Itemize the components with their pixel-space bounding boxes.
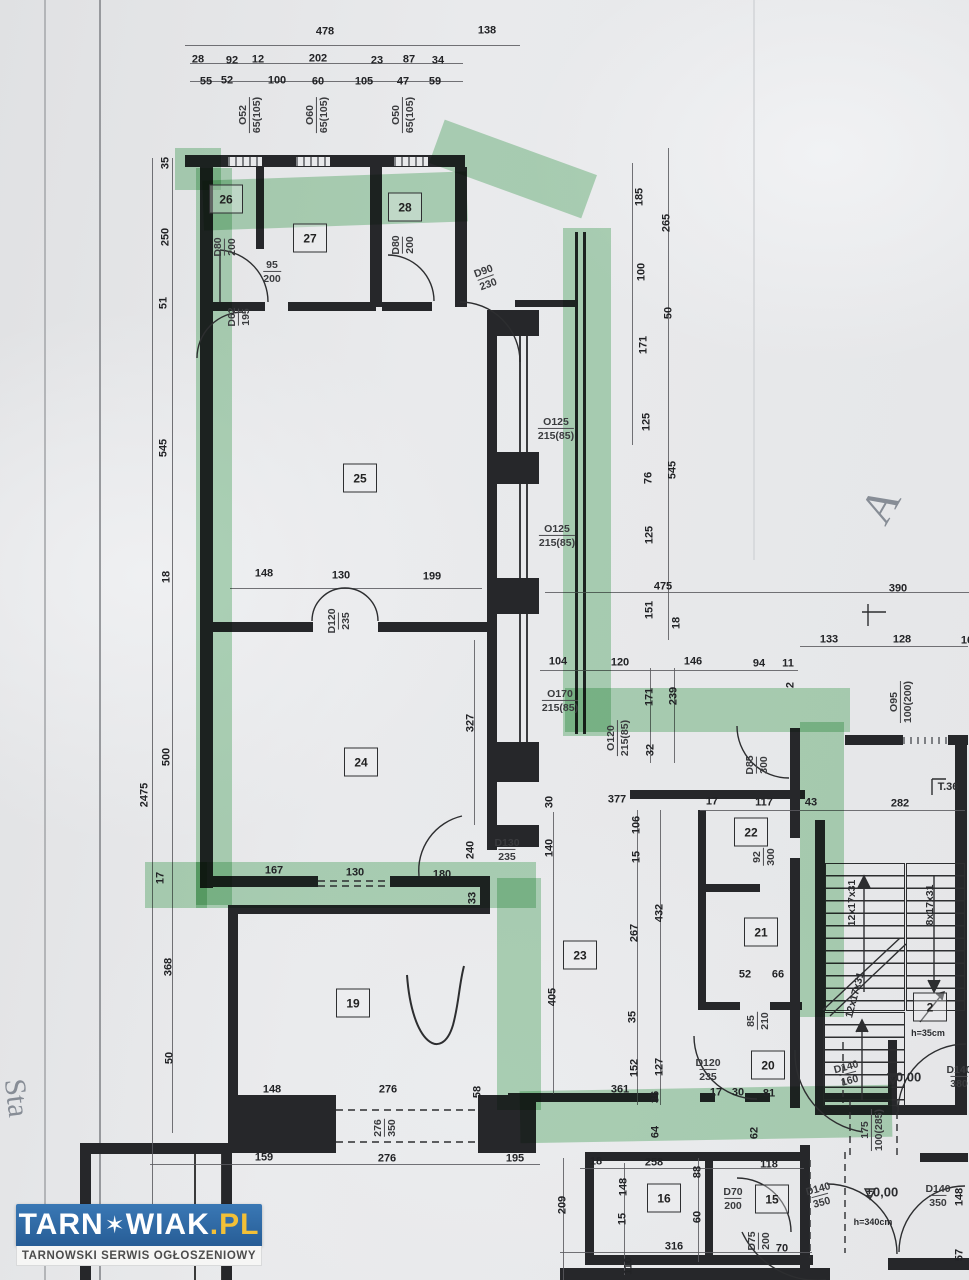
highlighter-mark <box>196 862 536 908</box>
opening-code: D75 <box>746 1231 758 1250</box>
opening-code: O50 <box>390 105 402 125</box>
dimension-label: 106 <box>632 816 643 834</box>
opening-size: 235 <box>699 1069 717 1083</box>
dimension-label: 81 <box>763 1089 775 1100</box>
dimension-label: 148 <box>955 1188 966 1206</box>
window-opening <box>903 737 948 744</box>
dimension-label: 478 <box>316 27 334 38</box>
room-number: 15 <box>755 1185 789 1214</box>
door-label: D140380 <box>946 1064 969 1090</box>
opening-code: D80 <box>390 235 402 254</box>
dimension-label: 545 <box>668 461 679 479</box>
wall <box>790 858 800 1108</box>
dimension-label: 180 <box>433 870 451 881</box>
dimension-label: 432 <box>655 904 666 922</box>
wall <box>80 1143 232 1154</box>
level-mark: ±0,00 <box>889 1070 921 1085</box>
dimension-line <box>474 640 475 825</box>
star-icon: ✶ <box>105 1211 125 1240</box>
opening-label: 175100(285) <box>859 1109 885 1151</box>
opening-code: O52 <box>237 105 249 125</box>
stair-run-label: 8x17x31 <box>924 885 936 926</box>
door-label: D140350 <box>925 1183 950 1209</box>
dimension-label: 117 <box>755 798 773 809</box>
dimension-label: 30 <box>545 796 556 808</box>
opening-size: 350 <box>384 1119 398 1137</box>
dimension-label: 28 <box>192 55 204 66</box>
opening-size: 300 <box>756 756 770 774</box>
opening-code: O95 <box>888 692 900 712</box>
wall <box>487 310 539 336</box>
dimension-label: 30 <box>732 1088 744 1099</box>
wall <box>560 1268 830 1280</box>
opening-size: 100(285) <box>871 1109 885 1151</box>
brand-text: WIAK <box>126 1208 210 1242</box>
reference-label: T.36 <box>938 781 959 793</box>
wall <box>228 1095 336 1153</box>
stair-note: h=340cm <box>854 1217 893 1227</box>
window-glazing-line <box>526 336 528 452</box>
dimension-label: 92 <box>226 56 238 67</box>
wall <box>705 1160 713 1260</box>
window-label: O5065(105) <box>390 97 416 133</box>
brand-domain-text: .PL <box>210 1208 260 1242</box>
dimension-label: 148 <box>255 569 273 580</box>
dimension-label: 239 <box>669 687 680 705</box>
opening-size: 350 <box>811 1193 832 1211</box>
opening-size: 100(200) <box>900 681 914 723</box>
dimension-label: 390 <box>889 584 907 595</box>
wall <box>487 578 539 614</box>
room-number: 26 <box>209 185 243 214</box>
dimension-label: 118 <box>760 1160 778 1171</box>
wall <box>790 728 800 838</box>
dimension-label: 127 <box>655 1058 666 1076</box>
wall <box>585 1255 813 1265</box>
dimension-label: 12 <box>252 55 264 66</box>
window-glazing-line <box>526 614 528 742</box>
dimension-label: 250 <box>161 228 172 246</box>
room-number: 16 <box>647 1184 681 1213</box>
wall <box>770 1002 802 1010</box>
opening-code: 85 <box>745 1015 757 1027</box>
dimension-label: 58 <box>473 1086 484 1098</box>
opening-code: D85 <box>744 755 756 774</box>
opening-code: D62 <box>226 307 238 326</box>
opening-size: 350 <box>929 1195 947 1209</box>
dimension-label: 130 <box>346 868 364 879</box>
dimension-label: 125 <box>645 526 656 544</box>
dimension-label: 32 <box>646 744 657 756</box>
door-label: D90230 <box>472 262 499 293</box>
dimension-line <box>185 45 520 46</box>
wall <box>920 1153 968 1162</box>
dimension-label: 51 <box>159 297 170 309</box>
opening-code: 95 <box>266 259 278 271</box>
wall <box>487 742 539 782</box>
opening-size: 210 <box>757 1012 771 1030</box>
opening-code: D80 <box>212 237 224 256</box>
wall <box>698 810 706 1005</box>
dimension-label: 50 <box>664 307 675 319</box>
window-glazing-line <box>519 336 521 452</box>
dimension-label: 368 <box>164 958 175 976</box>
door-label: D70200 <box>723 1186 742 1212</box>
dimension-label: 240 <box>466 841 477 859</box>
highlighter-mark <box>563 228 611 736</box>
brand-text: TARN <box>19 1208 104 1242</box>
dimension-label: 2 <box>786 682 797 688</box>
dimension-label: 138 <box>478 26 496 37</box>
scan-artifact-line <box>753 0 755 560</box>
room-number: 20 <box>751 1051 785 1080</box>
window-glazing-line <box>519 614 521 742</box>
room-number: 27 <box>293 224 327 253</box>
window-glazing-line <box>526 484 528 578</box>
dimension-label: 17 <box>156 872 167 884</box>
dimension-label: 2475 <box>140 783 151 807</box>
bleedthrough-text: Sta <box>0 1077 35 1119</box>
opening-code: D120 <box>695 1057 720 1069</box>
dimension-line <box>150 1164 540 1165</box>
window-label: O125215(85) <box>539 523 575 549</box>
dimension-label: 545 <box>159 439 170 457</box>
wall <box>698 884 760 892</box>
dimension-label: 55 <box>200 77 212 88</box>
door-label: D80200 <box>212 237 238 256</box>
dimension-label: 120 <box>611 658 629 669</box>
opening-code: D140 <box>946 1064 969 1076</box>
dimension-label: 148 <box>619 1178 630 1196</box>
dimension-label: 87 <box>403 55 415 66</box>
opening-code: D70 <box>723 1186 742 1198</box>
dimension-label: 47 <box>397 77 409 88</box>
dimension-label: 36 <box>651 1091 662 1103</box>
window-glazing-line <box>519 484 521 578</box>
dimension-label: 405 <box>548 988 559 1006</box>
dimension-label: 62 <box>750 1127 761 1139</box>
opening-size: 215(85) <box>539 535 575 549</box>
dimension-line <box>230 588 482 589</box>
opening-code: O125 <box>543 416 569 428</box>
window-label: O95100(200) <box>888 681 914 723</box>
dimension-label: 35 <box>161 157 172 169</box>
dimension-label: 17 <box>710 1088 722 1099</box>
dimension-label: 66 <box>772 970 784 981</box>
opening-size: 380 <box>950 1076 968 1090</box>
dimension-label: 94 <box>753 659 765 670</box>
dimension-label: 18 <box>590 1157 602 1168</box>
bleedthrough-text: A <box>849 477 912 532</box>
dimension-label: 276 <box>379 1085 397 1096</box>
opening-code: O170 <box>547 688 573 700</box>
dimension-label: 475 <box>654 582 672 593</box>
dimension-label: 43 <box>805 798 817 809</box>
window-opening <box>296 157 330 166</box>
window-label: O120215(85) <box>605 720 631 756</box>
room-number: 2 <box>913 993 947 1022</box>
dimension-label: 276 <box>378 1154 396 1165</box>
dimension-label: 33 <box>468 892 479 904</box>
tarnowiak-watermark: TARN✶WIAK.PL TARNOWSKI SERWIS OGŁOSZENIO… <box>16 1204 262 1266</box>
highlighter-mark <box>800 722 844 1017</box>
dimension-label: 125 <box>642 413 653 431</box>
scan-artifact-line <box>44 0 46 1280</box>
room-number: 24 <box>344 748 378 777</box>
opening-code: 175 <box>859 1121 871 1139</box>
opening-size: 195 <box>238 308 252 326</box>
wall <box>698 1002 740 1010</box>
wall <box>382 302 432 311</box>
opening-size: 235 <box>338 612 352 630</box>
opening-label: 92300 <box>751 848 777 866</box>
dimension-label: 110 <box>624 1257 635 1275</box>
dimension-label: 140 <box>545 839 556 857</box>
watermark-tagline: TARNOWSKI SERWIS OGŁOSZENIOWY <box>16 1246 262 1266</box>
opening-size: 215(85) <box>617 720 631 756</box>
dimension-label: 159 <box>255 1153 273 1164</box>
dimension-line <box>172 158 173 1133</box>
dimension-label: 88 <box>693 1166 704 1178</box>
dimension-label: 258 <box>645 1158 663 1169</box>
opening-label: 85210 <box>745 1012 771 1030</box>
dimension-label: 151 <box>645 601 656 619</box>
dimension-label: 148 <box>263 1085 281 1096</box>
room-number: 21 <box>744 918 778 947</box>
level-mark: ±0,00 <box>866 1185 898 1200</box>
window-label: O125215(85) <box>538 416 574 442</box>
opening-code: O120 <box>605 725 617 751</box>
dimension-label: 23 <box>371 56 383 67</box>
room-number: 25 <box>343 464 377 493</box>
wall <box>948 735 968 745</box>
opening-code: D120 <box>326 608 338 633</box>
dimension-label: 152 <box>630 1059 641 1077</box>
dimension-label: 35 <box>628 1011 639 1023</box>
dimension-label: 267 <box>630 924 641 942</box>
opening-size: 65(105) <box>402 97 416 133</box>
highlighter-mark <box>497 878 541 1110</box>
dimension-line <box>800 646 968 647</box>
dimension-label: 500 <box>162 748 173 766</box>
dimension-label: 18 <box>162 571 173 583</box>
opening-size: 200 <box>263 271 281 285</box>
dimension-label: 60 <box>693 1211 704 1223</box>
dimension-label: 128 <box>893 635 911 646</box>
dimension-label: 50 <box>165 1052 176 1064</box>
dimension-label: 327 <box>466 714 477 732</box>
room-number: 28 <box>388 193 422 222</box>
wall <box>228 912 238 1102</box>
opening-size: 200 <box>724 1198 742 1212</box>
dimension-label: 199 <box>423 572 441 583</box>
dimension-label: 202 <box>309 54 327 65</box>
dimension-label: 11 <box>782 659 794 670</box>
dimension-line <box>560 1252 812 1253</box>
dimension-label: 377 <box>608 795 626 806</box>
wall <box>487 452 539 484</box>
highlighter-mark <box>520 1085 893 1143</box>
dimension-label: 100 <box>637 263 648 281</box>
dimension-label: 76 <box>644 472 655 484</box>
dimension-label: 17 <box>706 797 718 808</box>
dimension-label: 18 <box>672 617 683 629</box>
opening-code: O125 <box>544 523 570 535</box>
opening-label: 95200 <box>263 259 281 285</box>
door-label: D130235 <box>494 837 519 863</box>
dimension-line <box>563 1158 564 1280</box>
dimension-label: 15 <box>632 851 643 863</box>
door-label: D85300 <box>744 755 770 774</box>
door-label: D75200 <box>746 1231 772 1250</box>
dimension-label: 195 <box>506 1154 524 1165</box>
dimension-label: 167 <box>265 866 283 877</box>
dimension-label: 60 <box>312 77 324 88</box>
window-opening <box>394 157 428 166</box>
stair-note: h=35cm <box>911 1028 945 1038</box>
opening-size: 300 <box>763 848 777 866</box>
dimension-label: 15 <box>618 1213 629 1225</box>
door-label: D120235 <box>326 608 352 633</box>
opening-label: 276350 <box>372 1119 398 1137</box>
dimension-label: 16 <box>961 636 969 647</box>
dimension-line <box>152 158 153 1240</box>
tarnowiak-logo: TARN✶WIAK.PL <box>16 1204 262 1246</box>
opening-size: 215(85) <box>538 428 574 442</box>
dimension-label: 133 <box>820 635 838 646</box>
opening-code: O60 <box>304 105 316 125</box>
dimension-label: 52 <box>221 76 233 87</box>
dimension-label: 34 <box>432 56 444 67</box>
opening-size: 65(105) <box>249 97 263 133</box>
opening-code: 92 <box>751 851 763 863</box>
opening-size: 200 <box>224 238 238 256</box>
room-number: 23 <box>563 941 597 970</box>
dimension-label: 59 <box>429 77 441 88</box>
dimension-label: 185 <box>635 188 646 206</box>
dimension-label: 316 <box>665 1242 683 1253</box>
dimension-label: 70 <box>776 1244 788 1255</box>
dimension-label: 171 <box>639 336 650 354</box>
window-opening <box>228 157 262 166</box>
wall <box>288 302 376 311</box>
opening-size: 200 <box>402 236 416 254</box>
dimension-label: 100 <box>268 76 286 87</box>
highlighter-mark <box>196 168 232 905</box>
opening-size: 200 <box>758 1232 772 1250</box>
door-label: D140350 <box>804 1180 835 1212</box>
dimension-label: 57 <box>955 1249 966 1261</box>
floor-plan-scan: TARN✶WIAK.PL TARNOWSKI SERWIS OGŁOSZENIO… <box>0 0 969 1280</box>
dimension-label: 146 <box>684 657 702 668</box>
opening-code: 276 <box>372 1119 384 1137</box>
opening-code: D130 <box>494 837 519 849</box>
room-number: 22 <box>734 818 768 847</box>
dimension-label: 361 <box>611 1085 629 1096</box>
dimension-label: 282 <box>891 799 909 810</box>
dimension-label: 104 <box>549 657 567 668</box>
opening-code: D140 <box>925 1183 950 1195</box>
dimension-label: 171 <box>645 688 656 706</box>
door-label: D80200 <box>390 235 416 254</box>
scan-artifact-line <box>99 0 101 1280</box>
room-number: 19 <box>336 989 370 1018</box>
dimension-label: 52 <box>739 970 751 981</box>
door-label: D120235 <box>695 1057 720 1083</box>
opening-size: 65(105) <box>316 97 330 133</box>
window-label: O170215(85) <box>542 688 578 714</box>
dimension-label: 64 <box>651 1126 662 1138</box>
door-label: D62195 <box>226 307 252 326</box>
dimension-label: 265 <box>662 214 673 232</box>
dimension-label: 209 <box>558 1196 569 1214</box>
window-label: O5265(105) <box>237 97 263 133</box>
opening-size: 235 <box>498 849 516 863</box>
window-label: O6065(105) <box>304 97 330 133</box>
wall <box>845 735 903 745</box>
wall <box>378 622 490 632</box>
opening-size: 215(85) <box>542 700 578 714</box>
dimension-label: 130 <box>332 571 350 582</box>
dimension-label: 105 <box>355 77 373 88</box>
stair-run-label: 12x17x31 <box>846 880 858 927</box>
